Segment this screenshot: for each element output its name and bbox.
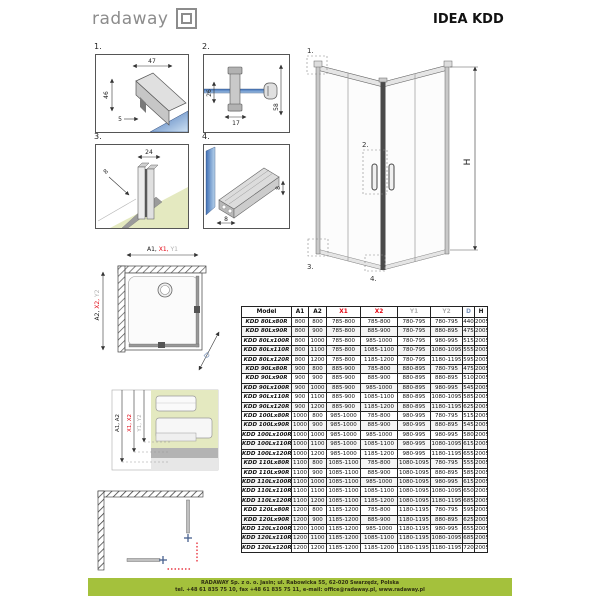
- table-row: KDD 80Lx120R8001200785-8001185-1200780-7…: [242, 355, 488, 364]
- section-dim-x-label: X1, X2: [127, 414, 133, 432]
- value-cell: 1100: [309, 346, 327, 355]
- model-cell: KDD 120Lx100R: [242, 524, 292, 533]
- value-cell: 985-1000: [361, 477, 398, 486]
- value-cell: 785-800: [361, 412, 398, 421]
- value-cell: 780-795: [431, 459, 463, 468]
- column-header: X2: [361, 307, 398, 318]
- value-cell: 885-900: [361, 515, 398, 524]
- value-cell: 1100: [292, 459, 309, 468]
- value-cell: 1100: [292, 468, 309, 477]
- value-cell: 2005: [475, 336, 488, 345]
- model-cell: KDD 100Lx100R: [242, 430, 292, 439]
- model-cell: KDD 80Lx80R: [242, 318, 292, 327]
- value-cell: 2005: [475, 524, 488, 533]
- value-cell: 885-900: [327, 383, 361, 392]
- value-cell: 585: [463, 393, 475, 402]
- value-cell: 880-895: [398, 374, 431, 383]
- value-cell: 985-1000: [327, 440, 361, 449]
- model-cell: KDD 80Lx120R: [242, 355, 292, 364]
- value-cell: 980-995: [398, 412, 431, 421]
- value-cell: 900: [309, 468, 327, 477]
- height-dimension-label: H: [463, 159, 473, 166]
- value-cell: 800: [292, 355, 309, 364]
- value-cell: 1000: [292, 430, 309, 439]
- model-cell: KDD 90Lx120R: [242, 402, 292, 411]
- section-dim-y-label: Y1, Y2: [137, 414, 143, 432]
- value-cell: 1200: [309, 355, 327, 364]
- table-row: KDD 110Lx80R11008001085-1100785-8001080-…: [242, 459, 488, 468]
- value-cell: 880-895: [398, 402, 431, 411]
- value-cell: 2005: [475, 346, 488, 355]
- value-cell: 515: [463, 412, 475, 421]
- detail-2-label: 2.: [202, 42, 210, 51]
- value-cell: 1085-1100: [361, 487, 398, 496]
- value-cell: 555: [463, 346, 475, 355]
- corner-post: [381, 82, 386, 270]
- value-cell: 545: [463, 421, 475, 430]
- table-row: KDD 110Lx100R110010001085-1100985-100010…: [242, 477, 488, 486]
- model-cell: KDD 90Lx80R: [242, 365, 292, 374]
- value-cell: 2005: [475, 459, 488, 468]
- value-cell: 985-1000: [327, 421, 361, 430]
- value-cell: 780-795: [398, 327, 431, 336]
- value-cell: 625: [463, 402, 475, 411]
- value-cell: 785-800: [327, 318, 361, 327]
- model-cell: KDD 120Lx80R: [242, 506, 292, 515]
- section-drawing: A1, A2 X1, X2 Y1, Y2: [108, 385, 220, 475]
- value-cell: 1200: [292, 515, 309, 524]
- value-cell: 885-900: [327, 374, 361, 383]
- value-cell: 2005: [475, 440, 488, 449]
- table-row: KDD 100Lx120R10001200985-10001185-120098…: [242, 449, 488, 458]
- table-row: KDD 120Lx90R12009001185-1200885-9001180-…: [242, 515, 488, 524]
- value-cell: 1080-1095: [398, 468, 431, 477]
- value-cell: 1185-1200: [327, 524, 361, 533]
- value-cell: 980-995: [398, 440, 431, 449]
- value-cell: 785-800: [327, 355, 361, 364]
- value-cell: 1085-1100: [327, 468, 361, 477]
- dim-47-label: 47: [148, 58, 156, 65]
- value-cell: 2005: [475, 506, 488, 515]
- size-table-body: KDD 80Lx80R800800785-800785-800780-79578…: [242, 318, 488, 553]
- value-cell: 580: [463, 430, 475, 439]
- value-cell: 985-1000: [327, 412, 361, 421]
- value-cell: 800: [292, 336, 309, 345]
- value-cell: 785-800: [327, 346, 361, 355]
- value-cell: 785-800: [361, 506, 398, 515]
- dim-46-label: 46: [103, 91, 110, 99]
- model-cell: KDD 110Lx120R: [242, 496, 292, 505]
- value-cell: 880-895: [431, 421, 463, 430]
- table-row: KDD 100Lx100R10001000985-1000985-1000980…: [242, 430, 488, 439]
- dim-5-label: 5: [118, 116, 122, 123]
- callout-1: 1.: [307, 47, 314, 55]
- value-cell: 1100: [292, 477, 309, 486]
- value-cell: 1200: [292, 543, 309, 552]
- value-cell: 2005: [475, 402, 488, 411]
- model-cell: KDD 100Lx110R: [242, 440, 292, 449]
- column-header: X1: [327, 307, 361, 318]
- table-row: KDD 120Lx120R120012001185-12001185-12001…: [242, 543, 488, 552]
- value-cell: 2005: [475, 365, 488, 374]
- value-cell: 1085-1100: [327, 477, 361, 486]
- model-cell: KDD 110Lx80R: [242, 459, 292, 468]
- value-cell: 625: [463, 515, 475, 524]
- value-cell: 685: [463, 534, 475, 543]
- value-cell: 2005: [475, 534, 488, 543]
- opening-schematic-drawing: [75, 485, 225, 580]
- table-row: KDD 90Lx110R9001100885-9001085-1100880-8…: [242, 393, 488, 402]
- value-cell: 585: [463, 468, 475, 477]
- column-header: A1: [292, 307, 309, 318]
- schematic-door-right: [187, 500, 190, 533]
- value-cell: 1200: [292, 524, 309, 533]
- value-cell: 880-895: [431, 374, 463, 383]
- value-cell: 880-895: [398, 383, 431, 392]
- value-cell: 780-795: [398, 355, 431, 364]
- value-cell: 980-995: [431, 336, 463, 345]
- value-cell: 1000: [309, 336, 327, 345]
- topview-left-dimension-label: A2, X2, Y2: [94, 265, 101, 345]
- table-row: KDD 80Lx90R800900785-800885-900780-79588…: [242, 327, 488, 336]
- value-cell: 780-795: [431, 412, 463, 421]
- value-cell: 1185-1200: [327, 543, 361, 552]
- callout-3: 3.: [307, 263, 314, 271]
- value-cell: 1085-1100: [361, 346, 398, 355]
- value-cell: 2005: [475, 355, 488, 364]
- dim-8-diag-label: 8: [102, 168, 110, 176]
- value-cell: 1180-1195: [431, 543, 463, 552]
- model-cell: KDD 100Lx80R: [242, 412, 292, 421]
- value-cell: 1100: [292, 487, 309, 496]
- callout-2: 2.: [362, 141, 369, 149]
- value-cell: 615: [463, 440, 475, 449]
- column-header: A2: [309, 307, 327, 318]
- value-cell: 1180-1195: [398, 515, 431, 524]
- value-cell: 1180-1195: [431, 496, 463, 505]
- detail-3-label: 3.: [94, 132, 102, 141]
- value-cell: 885-900: [361, 468, 398, 477]
- column-header: Model: [242, 307, 292, 318]
- value-cell: 595: [463, 355, 475, 364]
- value-cell: 2005: [475, 515, 488, 524]
- value-cell: 2005: [475, 468, 488, 477]
- dim-8-bottom-label: 8: [224, 216, 228, 223]
- value-cell: 1085-1100: [361, 393, 398, 402]
- value-cell: 1180-1195: [431, 402, 463, 411]
- table-row: KDD 110Lx90R11009001085-1100885-9001080-…: [242, 468, 488, 477]
- value-cell: 1180-1195: [398, 506, 431, 515]
- table-row: KDD 100Lx80R1000800985-1000785-800980-99…: [242, 412, 488, 421]
- value-cell: 1080-1095: [431, 346, 463, 355]
- value-cell: 1200: [309, 543, 327, 552]
- topview-top-dimension-label: A1, X1, Y1: [127, 246, 198, 253]
- value-cell: 1200: [292, 534, 309, 543]
- page-title: IDEA KDD: [433, 12, 504, 27]
- detail-3-wall-profile-drawing: 24 8: [95, 144, 189, 229]
- dimension-label-part: X2,: [94, 297, 101, 309]
- value-cell: 1080-1095: [398, 496, 431, 505]
- table-row: KDD 80Lx110R8001100785-8001085-1100780-7…: [242, 346, 488, 355]
- value-cell: 2005: [475, 487, 488, 496]
- dimension-label-part: A2,: [94, 309, 101, 321]
- value-cell: 1080-1095: [431, 440, 463, 449]
- value-cell: 985-1000: [361, 524, 398, 533]
- value-cell: 1080-1095: [431, 487, 463, 496]
- column-header: H: [475, 307, 488, 318]
- value-cell: 985-1000: [361, 430, 398, 439]
- value-cell: 785-800: [361, 459, 398, 468]
- logo-text: radaway: [92, 9, 169, 29]
- value-cell: 900: [309, 515, 327, 524]
- value-cell: 900: [309, 374, 327, 383]
- value-cell: 980-995: [431, 430, 463, 439]
- dim-58-label: 58: [273, 103, 280, 111]
- value-cell: 880-895: [398, 393, 431, 402]
- value-cell: 900: [292, 365, 309, 374]
- value-cell: 2005: [475, 449, 488, 458]
- value-cell: 900: [292, 383, 309, 392]
- table-row: KDD 100Lx110R10001100985-10001085-110098…: [242, 440, 488, 449]
- size-table-header: ModelA1A2X1X2Y1Y2DH: [242, 307, 488, 318]
- value-cell: 1200: [309, 402, 327, 411]
- value-cell: 985-1000: [361, 336, 398, 345]
- value-cell: 880-895: [431, 327, 463, 336]
- perspective-drawing: 1. 2. 3. 4. H: [295, 42, 480, 282]
- model-cell: KDD 80Lx110R: [242, 346, 292, 355]
- value-cell: 1080-1095: [398, 459, 431, 468]
- column-header: Y2: [431, 307, 463, 318]
- detail-1-label: 1.: [94, 42, 102, 51]
- value-cell: 885-900: [361, 421, 398, 430]
- value-cell: 800: [292, 327, 309, 336]
- value-cell: 515: [463, 336, 475, 345]
- value-cell: 1080-1095: [398, 477, 431, 486]
- dim-26-label: 26: [206, 89, 213, 97]
- value-cell: 545: [463, 383, 475, 392]
- dim-8-right-label: 8: [275, 186, 282, 190]
- value-cell: 1185-1200: [361, 496, 398, 505]
- value-cell: 1180-1195: [398, 524, 431, 533]
- dimension-label-part: A1,: [147, 246, 159, 253]
- value-cell: 1100: [309, 487, 327, 496]
- value-cell: 1000: [292, 449, 309, 458]
- callout-4: 4.: [370, 275, 377, 282]
- value-cell: 980-995: [431, 524, 463, 533]
- value-cell: 1200: [309, 496, 327, 505]
- value-cell: 1100: [309, 534, 327, 543]
- value-cell: 1080-1095: [398, 487, 431, 496]
- value-cell: 780-795: [398, 336, 431, 345]
- value-cell: 2005: [475, 421, 488, 430]
- value-cell: 1000: [292, 440, 309, 449]
- value-cell: 1185-1200: [327, 506, 361, 515]
- value-cell: 880-895: [431, 515, 463, 524]
- value-cell: 1085-1100: [327, 459, 361, 468]
- value-cell: 980-995: [398, 449, 431, 458]
- footer-contact-line: tel. +48 61 835 75 10, fax +48 61 835 75…: [175, 587, 425, 594]
- value-cell: 785-800: [327, 327, 361, 336]
- value-cell: 1180-1195: [431, 449, 463, 458]
- value-cell: 800: [292, 318, 309, 327]
- value-cell: 1085-1100: [361, 440, 398, 449]
- footer-bar: RADAWAY Sp. z o. o. Jasin; ul. Rabowicka…: [88, 578, 512, 596]
- value-cell: 780-795: [398, 318, 431, 327]
- value-cell: 785-800: [327, 336, 361, 345]
- value-cell: 800: [292, 346, 309, 355]
- value-cell: 720: [463, 543, 475, 552]
- value-cell: 2005: [475, 374, 488, 383]
- schematic-door-bottom: [127, 559, 160, 562]
- value-cell: 615: [463, 477, 475, 486]
- door-handle-icon: [389, 164, 394, 190]
- value-cell: 880-895: [431, 468, 463, 477]
- table-row: KDD 120Lx100R120010001185-1200985-100011…: [242, 524, 488, 533]
- value-cell: 1000: [292, 412, 309, 421]
- dim-17-label: 17: [232, 120, 240, 127]
- model-cell: KDD 90Lx90R: [242, 374, 292, 383]
- value-cell: 650: [463, 487, 475, 496]
- value-cell: 2005: [475, 430, 488, 439]
- diagonal-dimension-label: D: [202, 351, 212, 360]
- value-cell: 900: [309, 327, 327, 336]
- value-cell: 885-900: [327, 393, 361, 402]
- value-cell: 900: [292, 393, 309, 402]
- value-cell: 440: [463, 318, 475, 327]
- value-cell: 2005: [475, 412, 488, 421]
- section-dim-a-label: A1, A2: [115, 414, 121, 432]
- topview-drawing: D: [55, 240, 225, 385]
- value-cell: 980-995: [398, 430, 431, 439]
- value-cell: 1185-1200: [361, 355, 398, 364]
- value-cell: 685: [463, 496, 475, 505]
- value-cell: 2005: [475, 496, 488, 505]
- value-cell: 800: [309, 412, 327, 421]
- model-cell: KDD 80Lx90R: [242, 327, 292, 336]
- value-cell: 1000: [309, 524, 327, 533]
- value-cell: 1180-1195: [398, 534, 431, 543]
- value-cell: 1185-1200: [327, 515, 361, 524]
- value-cell: 980-995: [431, 477, 463, 486]
- value-cell: 2005: [475, 318, 488, 327]
- table-row: KDD 110Lx120R110012001085-11001185-12001…: [242, 496, 488, 505]
- value-cell: 555: [463, 459, 475, 468]
- model-cell: KDD 100Lx90R: [242, 421, 292, 430]
- value-cell: 1200: [292, 506, 309, 515]
- dim-24-label: 24: [145, 149, 153, 156]
- value-cell: 1080-1095: [431, 534, 463, 543]
- model-cell: KDD 110Lx90R: [242, 468, 292, 477]
- table-row: KDD 120Lx110R120011001185-12001085-11001…: [242, 534, 488, 543]
- detail-4-label: 4.: [202, 132, 210, 141]
- dimension-label-part: Y2: [94, 290, 101, 297]
- value-cell: 1180-1195: [398, 543, 431, 552]
- dimension-label-part: X1,: [159, 246, 171, 253]
- value-cell: 780-795: [398, 346, 431, 355]
- table-row: KDD 80Lx100R8001000785-800985-1000780-79…: [242, 336, 488, 345]
- detail-2-roller-drawing: 26 17 58: [203, 54, 290, 133]
- value-cell: 2005: [475, 383, 488, 392]
- value-cell: 900: [292, 402, 309, 411]
- value-cell: 1200: [309, 449, 327, 458]
- table-row: KDD 120Lx80R12008001185-1200785-8001180-…: [242, 506, 488, 515]
- value-cell: 885-900: [361, 327, 398, 336]
- value-cell: 885-900: [361, 374, 398, 383]
- table-row: KDD 80Lx80R800800785-800785-800780-79578…: [242, 318, 488, 327]
- value-cell: 1185-1200: [361, 543, 398, 552]
- table-row: KDD 90Lx90R900900885-900885-900880-89588…: [242, 374, 488, 383]
- logo-square-icon: [176, 8, 197, 29]
- value-cell: 980-995: [398, 421, 431, 430]
- dimension-label-part: Y1: [171, 246, 178, 253]
- value-cell: 2005: [475, 393, 488, 402]
- detail-4-threshold-drawing: 8 8: [203, 144, 290, 229]
- value-cell: 1180-1195: [431, 355, 463, 364]
- value-cell: 780-795: [431, 318, 463, 327]
- value-cell: 780-795: [431, 506, 463, 515]
- footer-address-line: RADAWAY Sp. z o. o. Jasin; ul. Rabowicka…: [201, 580, 399, 587]
- model-cell: KDD 110Lx100R: [242, 477, 292, 486]
- model-cell: KDD 80Lx100R: [242, 336, 292, 345]
- value-cell: 2005: [475, 327, 488, 336]
- radaway-logo: radaway: [92, 8, 197, 29]
- model-cell: KDD 110Lx110R: [242, 487, 292, 496]
- column-header: D: [463, 307, 475, 318]
- value-cell: 785-800: [361, 318, 398, 327]
- value-cell: 1080-1095: [431, 393, 463, 402]
- table-row: KDD 90Lx100R9001000885-900985-1000880-89…: [242, 383, 488, 392]
- value-cell: 900: [309, 421, 327, 430]
- table-row: KDD 110Lx110R110011001085-11001085-11001…: [242, 487, 488, 496]
- value-cell: 1100: [309, 440, 327, 449]
- table-row: KDD 90Lx120R9001200885-9001185-1200880-8…: [242, 402, 488, 411]
- value-cell: 1000: [309, 477, 327, 486]
- value-cell: 1100: [292, 496, 309, 505]
- value-cell: 880-895: [398, 365, 431, 374]
- value-cell: 1185-1200: [327, 534, 361, 543]
- value-cell: 800: [309, 365, 327, 374]
- value-cell: 475: [463, 327, 475, 336]
- value-cell: 1185-1200: [361, 402, 398, 411]
- value-cell: 1085-1100: [361, 534, 398, 543]
- model-cell: KDD 90Lx100R: [242, 383, 292, 392]
- column-header: Y1: [398, 307, 431, 318]
- value-cell: 510: [463, 374, 475, 383]
- value-cell: 1000: [309, 430, 327, 439]
- model-cell: KDD 120Lx120R: [242, 543, 292, 552]
- value-cell: 2005: [475, 477, 488, 486]
- value-cell: 655: [463, 449, 475, 458]
- door-handle-icon: [372, 164, 377, 190]
- value-cell: 800: [309, 459, 327, 468]
- value-cell: 785-800: [361, 365, 398, 374]
- value-cell: 1085-1100: [327, 496, 361, 505]
- value-cell: 900: [292, 374, 309, 383]
- value-cell: 800: [309, 506, 327, 515]
- model-cell: KDD 120Lx90R: [242, 515, 292, 524]
- value-cell: 980-995: [431, 383, 463, 392]
- value-cell: 780-795: [431, 365, 463, 374]
- value-cell: 1000: [292, 421, 309, 430]
- value-cell: 595: [463, 506, 475, 515]
- value-cell: 985-1000: [361, 383, 398, 392]
- value-cell: 655: [463, 524, 475, 533]
- value-cell: 885-900: [327, 402, 361, 411]
- value-cell: 985-1000: [327, 430, 361, 439]
- value-cell: 885-900: [327, 365, 361, 374]
- model-cell: KDD 120Lx110R: [242, 534, 292, 543]
- size-table: ModelA1A2X1X2Y1Y2DH KDD 80Lx80R800800785…: [241, 306, 488, 553]
